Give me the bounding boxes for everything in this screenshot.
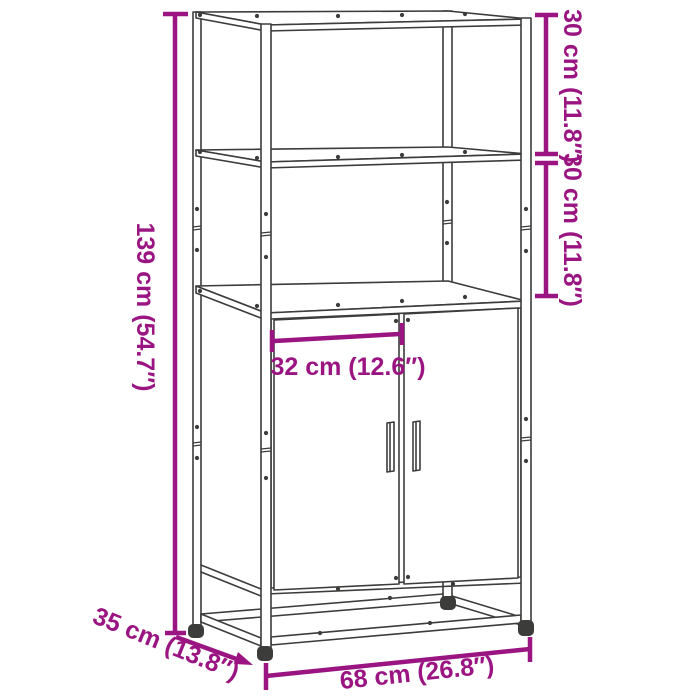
dimension-label-middle-shelf-height: 30 cm (11.8″) — [557, 120, 587, 340]
dimension-label-total-height: 139 cm (54.7″) — [130, 197, 160, 417]
base-front-rail — [271, 615, 521, 645]
dimension-line-top-shelf — [535, 15, 558, 154]
cabinet-door-right — [404, 308, 518, 584]
door-handle-right — [413, 421, 420, 471]
dimension-line-total-height — [163, 14, 188, 633]
cabinet-body — [266, 308, 526, 594]
cabinet-left-side — [201, 565, 261, 596]
cabinet-line-drawing — [0, 0, 700, 700]
product-dimension-diagram: 139 cm (54.7″) 30 cm (11.8″) 30 cm (11.8… — [0, 0, 700, 700]
door-handle-left — [387, 422, 394, 472]
middle-shelf — [196, 147, 527, 168]
dimension-label-inner-width: 32 cm (12.6″) — [238, 352, 458, 382]
dimension-line-middle-shelf — [535, 163, 558, 296]
top-panel — [196, 11, 529, 31]
